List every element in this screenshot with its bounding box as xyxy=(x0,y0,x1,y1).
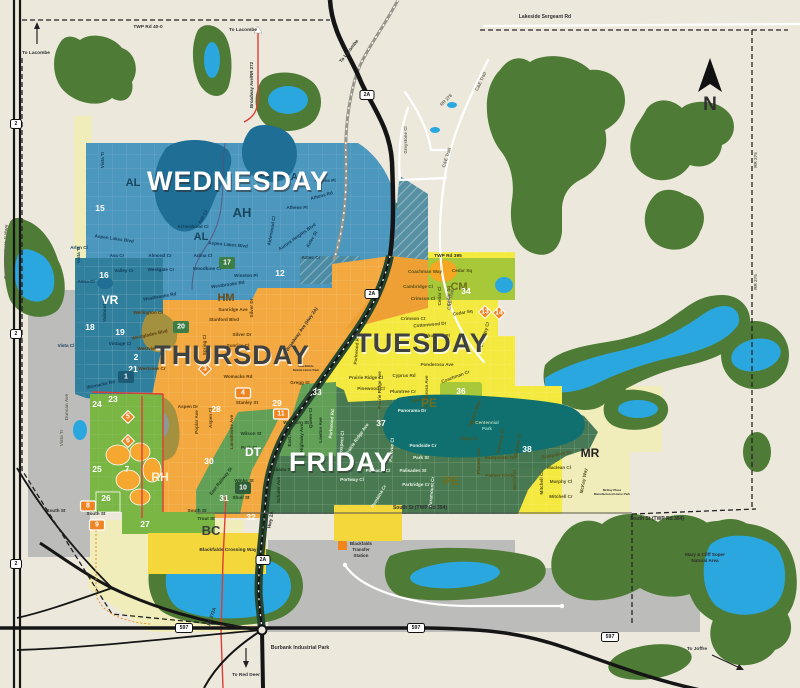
place-label: South St (TWP Rd 394) xyxy=(393,505,447,511)
collection-day-label: WEDNESDAY xyxy=(147,166,329,196)
place-label: Natural Area xyxy=(691,558,719,563)
zone-number: 33 xyxy=(312,387,322,397)
zone-number: 17 xyxy=(223,260,231,267)
zone-number: 4 xyxy=(241,390,245,397)
zone-number: 18 xyxy=(85,322,95,332)
street-label: Mitchell Cr xyxy=(549,494,573,499)
highway-shield-number: 2A xyxy=(364,92,371,98)
street-label: Crimson Ct xyxy=(401,316,426,321)
zone-number: 11 xyxy=(277,411,285,418)
street-label: East Ave xyxy=(287,427,292,447)
street-label: Parkridge Cr xyxy=(402,482,430,487)
street-label: Prairie Ridge Ave xyxy=(377,371,382,409)
street-label: Poplar Ave xyxy=(194,410,199,434)
neighborhood-code: PE xyxy=(443,474,459,488)
neighborhood-code: AL xyxy=(126,177,141,189)
zone-number: 31 xyxy=(219,493,229,503)
map-canvas: Vista TrVista TrAnna ClAspen Lakes BlvdA… xyxy=(0,0,800,688)
zone-number: 9 xyxy=(95,522,99,529)
street-label: Waghorn St xyxy=(283,420,309,425)
neighborhood-code: AL xyxy=(194,231,209,243)
highway-shield-number: 2 xyxy=(15,331,18,337)
street-label: Silver Dr xyxy=(233,332,252,337)
street-label: Lansdowne Ave xyxy=(229,414,234,449)
neighborhood-code: AH xyxy=(233,205,252,220)
street-label: Ava Cr xyxy=(110,253,125,258)
neighborhood-code: RH xyxy=(151,470,168,484)
collection-day-label: FRIDAY xyxy=(289,447,393,477)
zone-number: 1 xyxy=(124,374,128,381)
street-label: Vista Tr xyxy=(100,152,105,169)
blackfalds-collection-day-map: Vista TrVista TrAnna ClAspen Lakes BlvdA… xyxy=(0,0,800,688)
place-label: South St xyxy=(47,508,66,513)
place-label: RR 275 xyxy=(753,452,758,468)
street-label: South St xyxy=(188,508,207,513)
highway-shield-number: 2 xyxy=(15,121,18,127)
zone-number: 2 xyxy=(134,352,139,362)
street-label: Aztec Cr xyxy=(302,255,321,260)
zone-number: 19 xyxy=(115,327,125,337)
road-endpoint-dot xyxy=(560,604,564,608)
highway-shield-number: 2A xyxy=(260,557,267,563)
collection-day-label: THURSDAY xyxy=(154,340,310,370)
zone-number: 24 xyxy=(92,399,102,409)
street-label: Almond Cr xyxy=(148,253,172,258)
place-label: Burbank Industrial Park xyxy=(271,645,330,651)
street-label: Broadway Ave xyxy=(260,504,265,536)
highway-shield-number: 2 xyxy=(15,561,18,567)
street-label: Ponderosa Ave xyxy=(420,362,454,367)
highway-shield-number: 2A xyxy=(369,291,376,297)
collection-day-label: TUESDAY xyxy=(355,328,489,358)
street-label: Stanford Blvd xyxy=(209,317,239,322)
neighborhood-code: VR xyxy=(102,293,119,307)
street-label: Arlen Cl xyxy=(70,245,88,250)
place-label: Blackfalds xyxy=(350,541,373,546)
street-label: Park St xyxy=(413,455,429,460)
zone-number: 36 xyxy=(456,386,466,396)
street-label: Crimson Cl xyxy=(411,296,436,301)
zone-number: 26 xyxy=(101,493,111,503)
street-label: Womacks Rd xyxy=(224,374,253,379)
place-label: RR 275 xyxy=(753,152,758,168)
zone-number: 7 xyxy=(125,464,130,474)
zone-number: 5 xyxy=(126,414,130,421)
street-label: Duncan Ave xyxy=(64,393,69,420)
street-label: Queen Cl xyxy=(308,408,313,428)
street-label: Palmer Circle xyxy=(485,473,515,478)
zone-number: 23 xyxy=(108,394,118,404)
neighborhood-code: MR xyxy=(581,446,600,460)
street-label: Athens Pl xyxy=(286,205,307,210)
street-label: Westgate Cr xyxy=(148,267,175,272)
street-label: Cambridge Cl xyxy=(403,284,433,289)
highway-shield-number: 597 xyxy=(180,625,189,631)
zone-number: 28 xyxy=(211,404,221,414)
street-label: Vintage Cl xyxy=(109,341,131,346)
zone-number: 14 xyxy=(495,310,503,317)
street-label: Coachman Way xyxy=(408,269,442,274)
zone-number: 32 xyxy=(246,512,256,522)
place-label: To Red Deer xyxy=(232,672,260,678)
roundabout xyxy=(258,626,267,635)
zone-number: 29 xyxy=(272,398,282,408)
street-label: Piper Cl xyxy=(460,436,477,441)
street-label: Schuler Ave xyxy=(276,476,281,503)
zone-number: 15 xyxy=(95,203,105,213)
zone-number: 27 xyxy=(140,519,150,529)
zone-number: 20 xyxy=(177,324,185,331)
street-label: Cedar Sq xyxy=(452,268,472,273)
zone-number: 25 xyxy=(92,464,102,474)
street-label: Palisades St xyxy=(399,468,427,473)
zone-number: 30 xyxy=(204,456,214,466)
road-endpoint-dot xyxy=(343,563,347,567)
place-label: TWP Rd 40-0 xyxy=(133,24,163,30)
zone-number: 38 xyxy=(522,444,532,454)
street-label: Adina Cl xyxy=(194,253,213,258)
place-label: To Lacombe xyxy=(229,27,257,33)
place-label: Station xyxy=(354,553,369,558)
place-label: South St (TWP Rd 394) xyxy=(630,516,684,522)
street-label: Winston Pl xyxy=(234,273,258,278)
street-label: Shull St xyxy=(232,495,250,500)
transfer-station-icon xyxy=(338,541,347,550)
neighborhood-code: BC xyxy=(202,523,221,538)
street-label: Trout St xyxy=(197,516,215,521)
street-label: Pondside Cr xyxy=(409,443,436,448)
street-label: Gregg St xyxy=(290,380,310,385)
neighborhood-code: DT xyxy=(245,445,262,459)
zone-number: 13 xyxy=(481,309,489,316)
zone-number: 8 xyxy=(86,503,90,510)
zone-number: 16 xyxy=(99,270,109,280)
street-label: Eastpointe Dr xyxy=(485,455,515,460)
place-label: To Lacombe xyxy=(22,50,50,56)
street-label: Cyprus Rd xyxy=(392,373,415,378)
street-label: Plumtree Cr xyxy=(390,389,416,394)
highway-shield-number: 597 xyxy=(606,634,615,640)
highway-shield-number: 597 xyxy=(412,625,421,631)
street-label: Portway Cl xyxy=(340,477,364,482)
street-label: Arrowwood Cl xyxy=(177,224,208,229)
street-label: Vista Cl xyxy=(58,343,75,348)
street-label: Silver Dr xyxy=(249,298,254,317)
street-label: Valley Cr xyxy=(114,268,134,273)
neighborhood-code: PE xyxy=(421,396,437,410)
street-label: Aspen Dr xyxy=(178,404,199,409)
neighborhood-code: HM xyxy=(217,292,234,304)
street-label: Stanley St xyxy=(236,400,259,405)
street-label: Anna Cl xyxy=(77,279,94,284)
street-label: Lawton Ave xyxy=(318,417,323,443)
place-label: Transfer xyxy=(352,547,370,552)
place-label: RR 275 xyxy=(753,274,758,290)
place-label: Centennial xyxy=(475,420,498,425)
street-label: Morris Cl xyxy=(512,470,517,490)
street-label: Wellington Cl xyxy=(133,310,162,315)
place-label: Lakeside Sergeant Rd xyxy=(519,14,571,20)
zone-number: 10 xyxy=(239,485,247,492)
place-label: Queen Elizabeth II Hwy xyxy=(4,224,10,279)
street-label: Sunridge Ave xyxy=(218,307,248,312)
place-label: South St xyxy=(87,511,106,516)
street-label: Wilson St xyxy=(241,431,262,436)
place-label: N xyxy=(703,94,717,115)
zone-number: 37 xyxy=(376,418,386,428)
place-label: Mary & Cliff Soper xyxy=(685,552,725,557)
place-label: Park xyxy=(482,426,492,431)
street-label: Woodbine Cl xyxy=(193,266,221,271)
zone-number: 12 xyxy=(275,268,285,278)
place-label: To Joffre xyxy=(687,646,707,652)
street-label: Mitchell Cl xyxy=(539,472,544,495)
street-label: Murphy Cl xyxy=(550,479,572,484)
street-label: Maclean Cl xyxy=(547,465,571,470)
street-label: Pioneer Ave xyxy=(476,447,481,474)
street-label: Vista Tr xyxy=(59,430,64,447)
place-label: Blackfalds Crossing Way xyxy=(199,547,256,553)
place-label: Greystone Cl xyxy=(403,126,408,153)
street-label: Cedar Cl xyxy=(437,287,442,306)
place-label: Manufactured Home Park xyxy=(594,492,631,496)
place-label: Broadway Ave/RR 272 xyxy=(249,61,254,108)
zone-number: 34 xyxy=(461,286,471,296)
zone-number: 6 xyxy=(126,438,130,445)
place-label: TWP Rd 395 xyxy=(434,253,462,259)
